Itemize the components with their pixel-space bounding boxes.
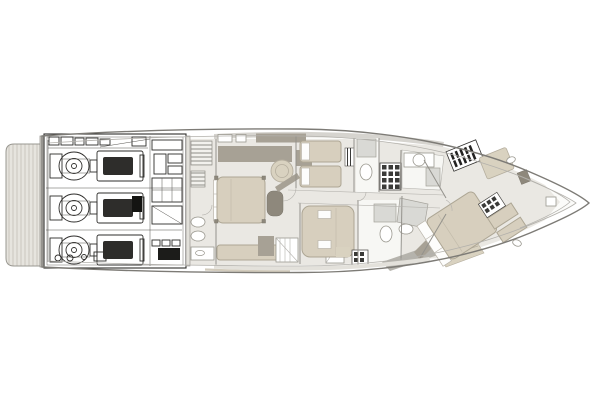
engine-room: Engine room bbox=[44, 134, 186, 268]
crew-galley-unit bbox=[191, 247, 214, 260]
twin-bed-1 bbox=[300, 141, 341, 162]
crew-toilet bbox=[191, 217, 205, 227]
guest-bathroom-top: Guest bathroom bbox=[356, 138, 379, 193]
crew-sink bbox=[191, 231, 205, 241]
toilet bbox=[360, 164, 372, 180]
toilet bbox=[380, 226, 392, 242]
wardrobe bbox=[218, 146, 292, 162]
yacht-floorplan-canvas: Swim platform Engine room bbox=[0, 0, 600, 400]
sink bbox=[413, 154, 425, 166]
staircase-main bbox=[380, 163, 401, 190]
anchor-windlass bbox=[546, 197, 556, 206]
armchair bbox=[267, 191, 283, 216]
lower-deck-plan: Swim platform Engine room bbox=[0, 0, 600, 400]
swim-platform: Swim platform bbox=[6, 136, 44, 267]
twin-bed-2 bbox=[300, 166, 341, 187]
louver-door bbox=[345, 148, 354, 166]
crew-locker bbox=[191, 141, 212, 165]
double-bed bbox=[214, 176, 266, 223]
shower bbox=[357, 139, 376, 157]
